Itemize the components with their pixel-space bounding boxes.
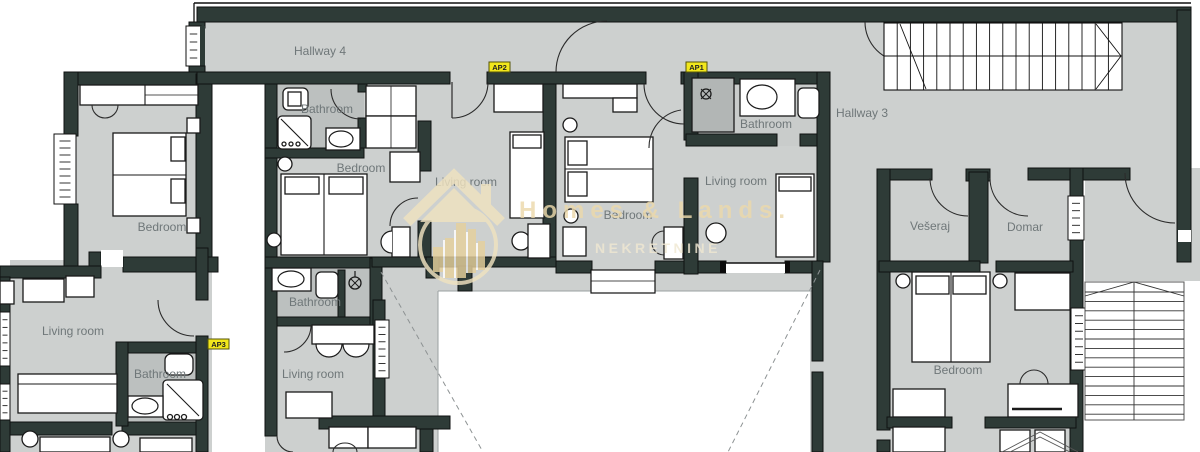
svg-text:Hallway 4: Hallway 4 <box>294 44 346 58</box>
svg-text:Hallway 3: Hallway 3 <box>836 106 888 120</box>
svg-text:Living room: Living room <box>42 324 104 338</box>
svg-text:Bathroom: Bathroom <box>301 102 353 116</box>
svg-text:AP1: AP1 <box>689 63 704 72</box>
svg-text:Bathroom: Bathroom <box>134 367 186 381</box>
svg-text:Vešeraj: Vešeraj <box>910 219 950 233</box>
svg-text:Bedroom: Bedroom <box>934 363 983 377</box>
svg-text:Bathroom: Bathroom <box>289 295 341 309</box>
svg-text:Bedroom: Bedroom <box>337 161 386 175</box>
svg-text:Bedroom: Bedroom <box>138 220 187 234</box>
svg-text:Living room: Living room <box>705 174 767 188</box>
svg-text:AP2: AP2 <box>492 63 507 72</box>
svg-text:Domar: Domar <box>1007 220 1043 234</box>
svg-text:Homes & Lands.: Homes & Lands. <box>519 197 791 224</box>
svg-text:NEKRETNINE: NEKRETNINE <box>595 240 721 256</box>
svg-text:Bathroom: Bathroom <box>740 117 792 131</box>
svg-text:Living room: Living room <box>282 367 344 381</box>
svg-text:AP3: AP3 <box>211 340 226 349</box>
